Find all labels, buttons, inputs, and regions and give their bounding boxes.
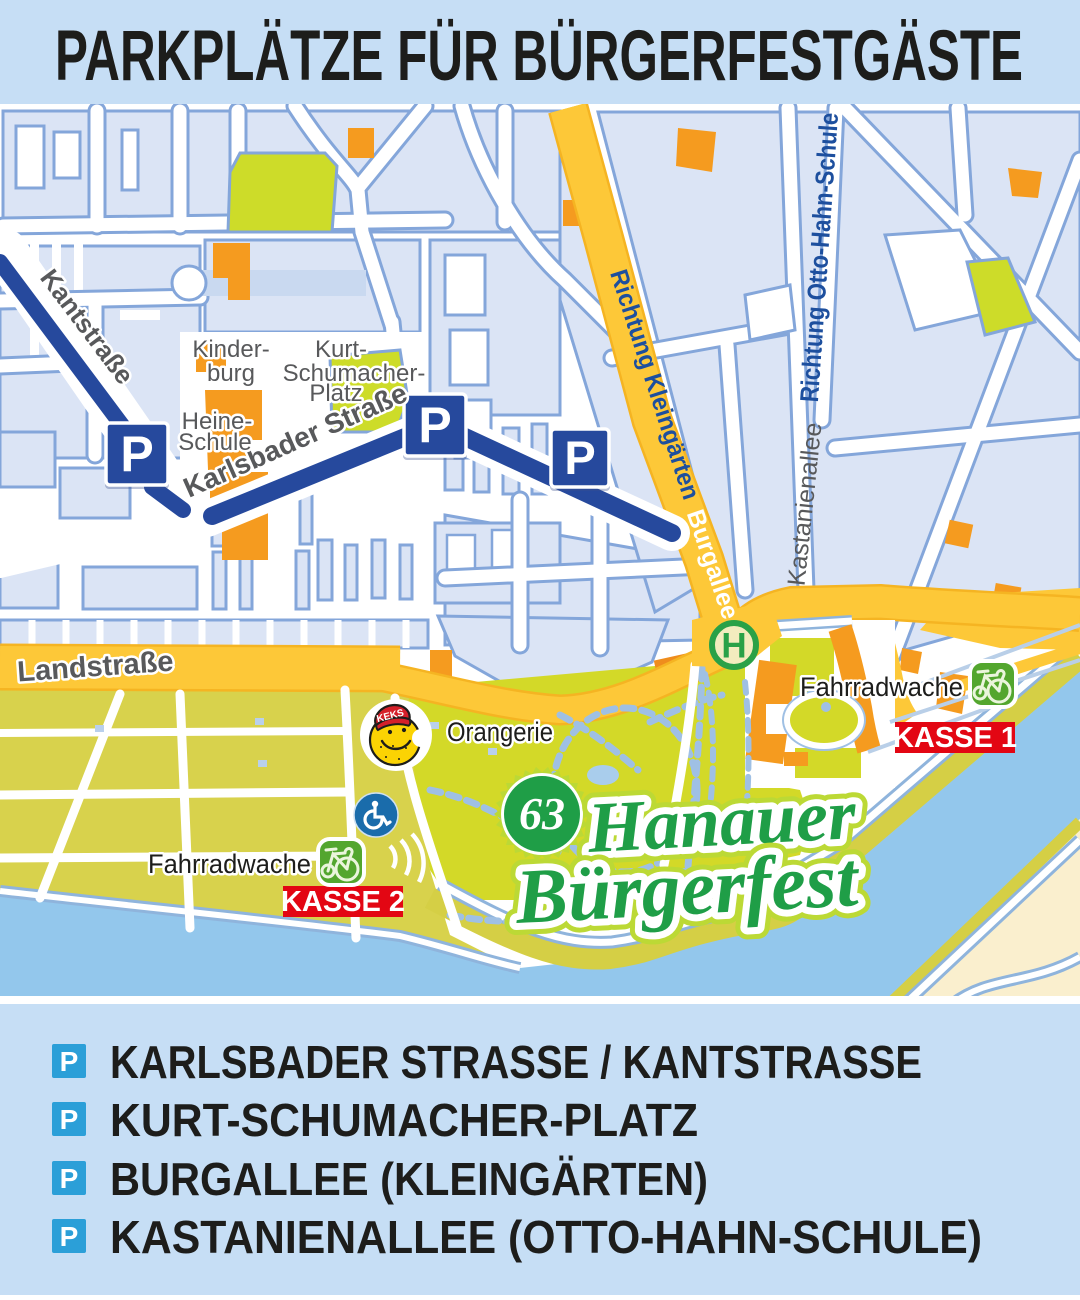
svg-text:Schule: Schule: [178, 429, 251, 456]
svg-text:P: P: [60, 1221, 79, 1252]
svg-text:Fahrradwache: Fahrradwache: [148, 849, 311, 879]
svg-text:P: P: [418, 397, 451, 453]
svg-text:Platz: Platz: [309, 380, 362, 407]
svg-text:KARLSBADER STRASSE / KANTSTRAS: KARLSBADER STRASSE / KANTSTRASSE: [110, 1036, 922, 1088]
svg-text:P: P: [564, 431, 595, 484]
svg-text:BURGALLEE (KLEINGÄRTEN): BURGALLEE (KLEINGÄRTEN): [110, 1153, 708, 1205]
svg-text:KURT-SCHUMACHER-PLATZ: KURT-SCHUMACHER-PLATZ: [110, 1094, 698, 1146]
svg-text:Kurt-: Kurt-: [315, 336, 367, 363]
svg-text:P: P: [120, 426, 153, 482]
svg-text:KASSE 2: KASSE 2: [281, 886, 405, 918]
svg-text:63: 63: [519, 788, 565, 839]
svg-text:H: H: [721, 627, 746, 666]
svg-text:Fahrradwache: Fahrradwache: [800, 672, 963, 702]
svg-text:KASTANIENALLEE (OTTO-HAHN-SCHU: KASTANIENALLEE (OTTO-HAHN-SCHULE): [110, 1211, 982, 1263]
svg-text:KASSE 1: KASSE 1: [893, 722, 1017, 754]
svg-text:burg: burg: [207, 360, 255, 387]
svg-text:PARKPLÄTZE FÜR BÜRGERFESTGÄSTE: PARKPLÄTZE FÜR BÜRGERFESTGÄSTE: [55, 17, 1023, 96]
svg-text:Kinder-: Kinder-: [192, 336, 269, 363]
svg-text:P: P: [60, 1046, 79, 1077]
svg-text:Orangerie: Orangerie: [447, 717, 553, 747]
svg-text:Bürgerfest: Bürgerfest: [512, 835, 862, 940]
svg-text:P: P: [60, 1163, 79, 1194]
svg-text:P: P: [60, 1104, 79, 1135]
